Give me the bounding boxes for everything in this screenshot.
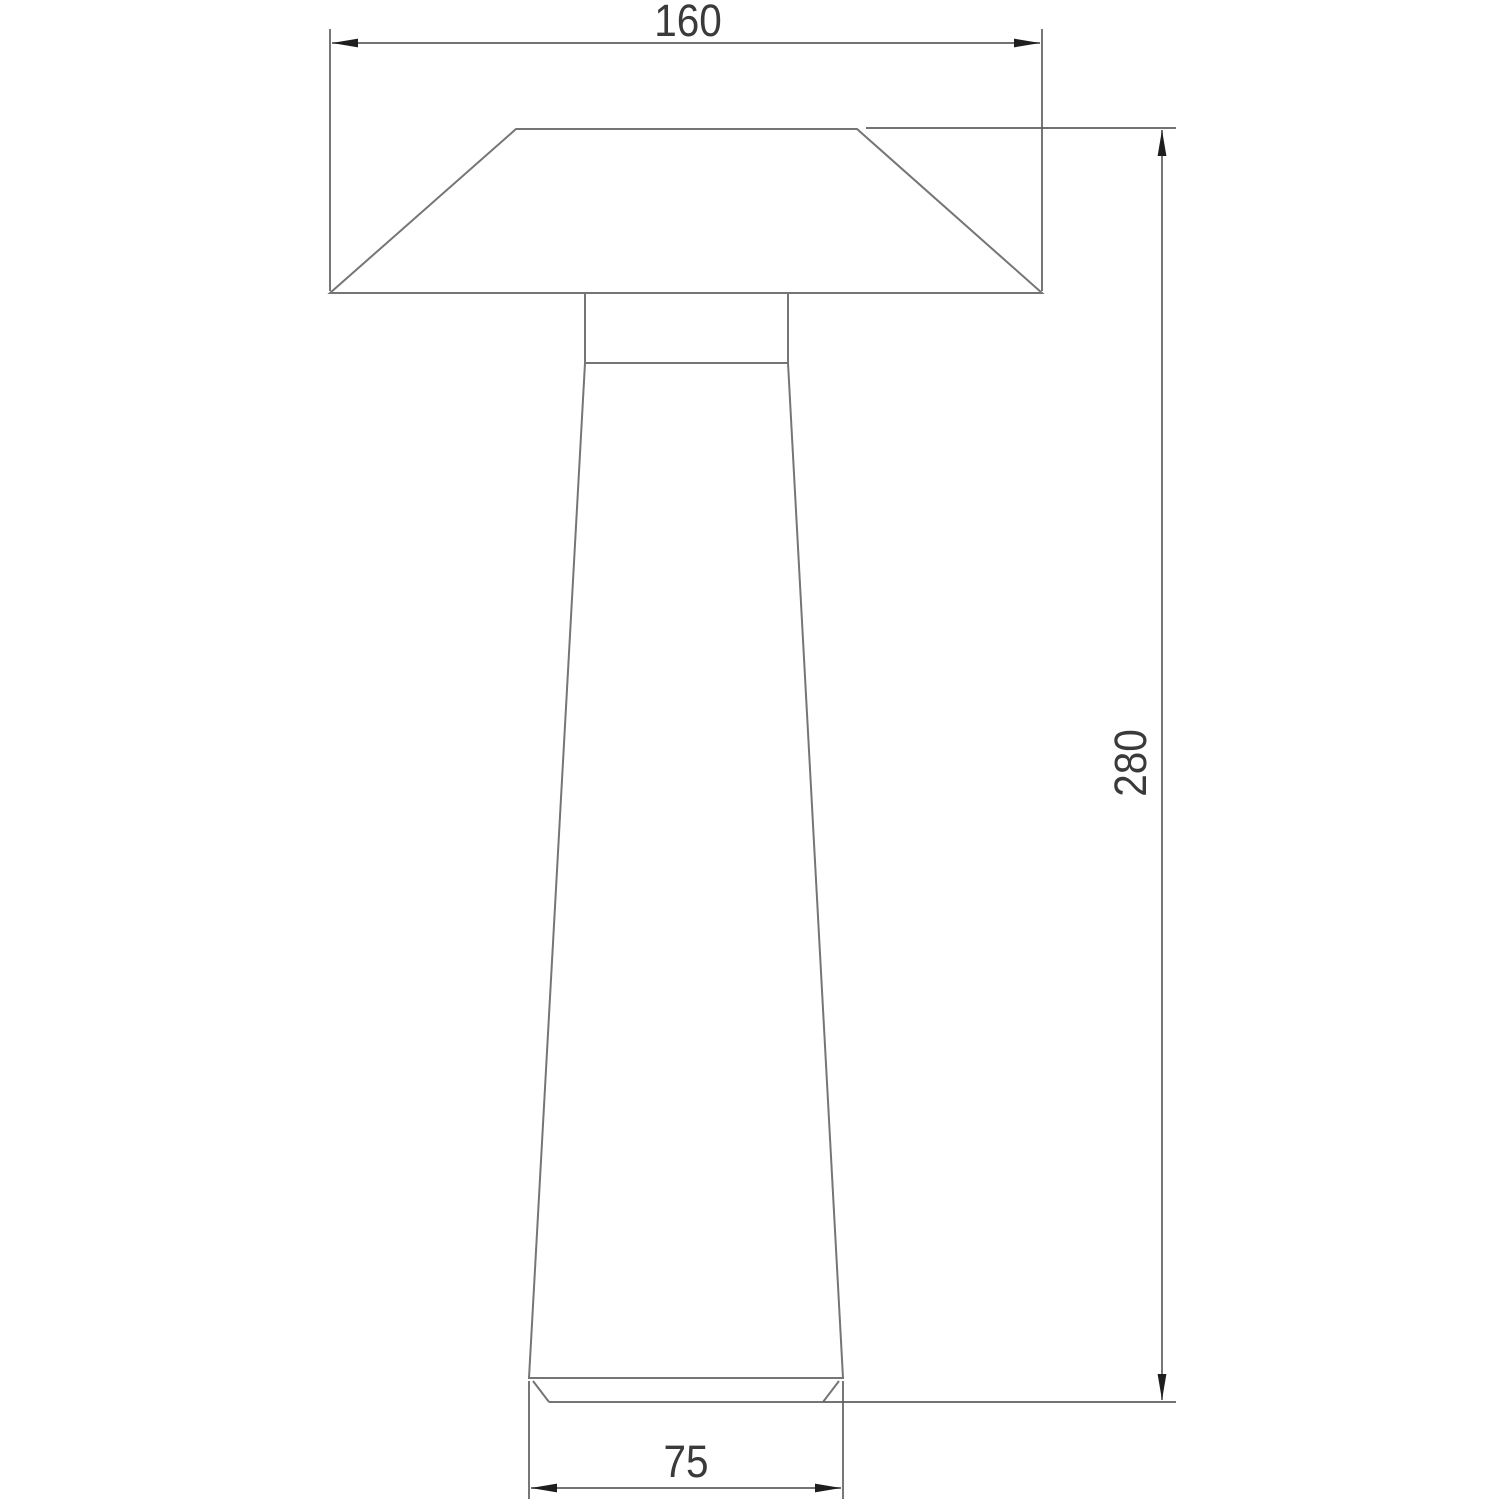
lamp-outline <box>330 129 1042 1402</box>
dimension-overall-height: 280 <box>823 128 1176 1402</box>
lamp-dimension-drawing: 160 280 75 <box>0 0 1500 1500</box>
base-chamfer-right <box>823 1381 839 1402</box>
lamp-shade <box>330 129 1042 293</box>
drawing-canvas: 160 280 75 <box>0 0 1500 1500</box>
base-chamfer-left <box>533 1381 549 1402</box>
lamp-body <box>529 363 843 1378</box>
dimension-label-base-width: 75 <box>663 1437 708 1487</box>
dimension-label-shade-width: 160 <box>654 0 722 47</box>
dimension-base-width: 75 <box>529 1381 843 1499</box>
dimension-label-overall-height: 280 <box>1106 729 1156 797</box>
